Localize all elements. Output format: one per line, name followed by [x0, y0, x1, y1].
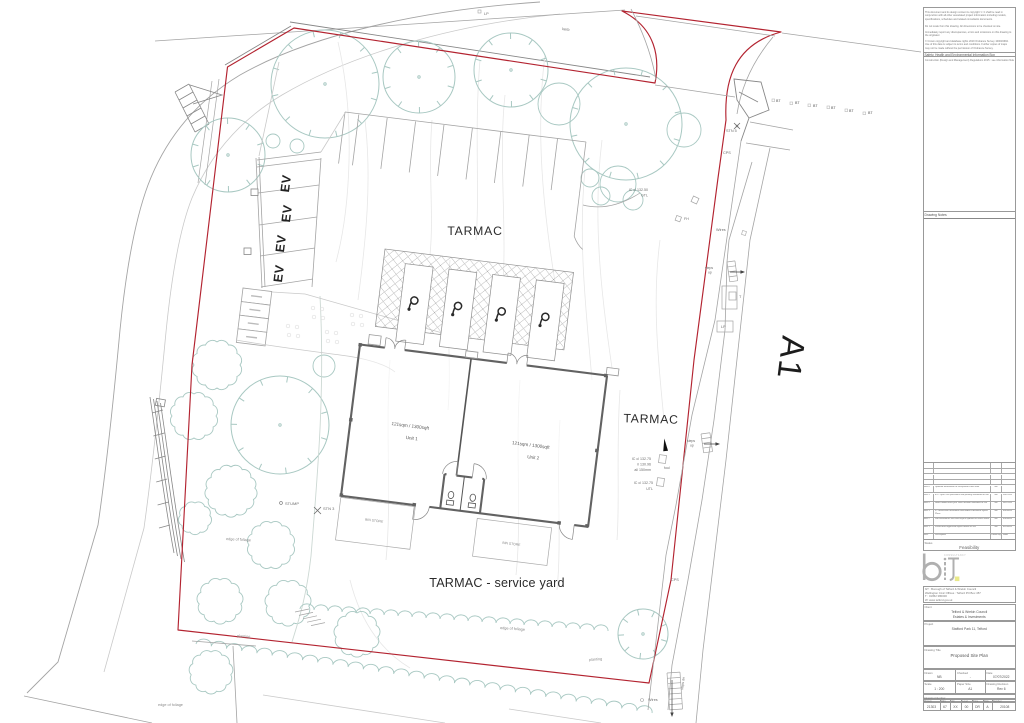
- svg-text:BT: BT: [776, 99, 781, 103]
- svg-text:TARMAC - service yard: TARMAC - service yard: [429, 576, 565, 590]
- svg-text:CPS: CPS: [723, 151, 731, 155]
- svg-text:LP: LP: [721, 325, 726, 329]
- svg-text:FH: FH: [684, 217, 689, 221]
- svg-text:steps: steps: [705, 266, 713, 270]
- svg-text:TARMAC: TARMAC: [447, 224, 502, 238]
- svg-text:edge of foliage: edge of foliage: [158, 703, 183, 707]
- svg-text:il 130.96: il 130.96: [637, 463, 651, 467]
- svg-text:BT: BT: [868, 111, 873, 115]
- svg-text:LP: LP: [484, 12, 489, 16]
- svg-text:foul: foul: [664, 466, 670, 470]
- svg-text:up: up: [708, 270, 712, 274]
- svg-text:UTL: UTL: [646, 487, 653, 491]
- svg-text:Wires: Wires: [648, 698, 658, 702]
- svg-text:STN 5: STN 5: [726, 129, 737, 133]
- svg-text:EV: EV: [273, 234, 289, 253]
- svg-text:BT: BT: [813, 104, 818, 108]
- svg-text:A1: A1: [770, 334, 812, 383]
- svg-text:EV: EV: [271, 264, 287, 283]
- svg-text:CPS: CPS: [671, 578, 679, 582]
- svg-text:TARMAC: TARMAC: [623, 411, 679, 426]
- svg-text:IC cl 132.75: IC cl 132.75: [634, 481, 653, 485]
- svg-text:up: up: [690, 443, 694, 447]
- svg-text:IC cl 132.50: IC cl 132.50: [629, 188, 648, 192]
- svg-text:BT: BT: [831, 106, 836, 110]
- svg-text:STN 3: STN 3: [323, 506, 335, 511]
- svg-text:CONSULTANCY: CONSULTANCY: [944, 554, 966, 557]
- svg-text:GTL: GTL: [641, 194, 648, 198]
- svg-text:Wires: Wires: [716, 228, 726, 232]
- svg-text:all 150mm: all 150mm: [634, 468, 651, 472]
- svg-text:STUMP: STUMP: [285, 501, 299, 506]
- svg-text:BT: BT: [795, 101, 800, 105]
- svg-text:steps: steps: [687, 439, 695, 443]
- svg-text:BT: BT: [849, 109, 854, 113]
- svg-text:EV: EV: [279, 204, 295, 223]
- svg-text:EV: EV: [278, 174, 294, 193]
- svg-text:IC cl 132.75: IC cl 132.75: [632, 457, 651, 461]
